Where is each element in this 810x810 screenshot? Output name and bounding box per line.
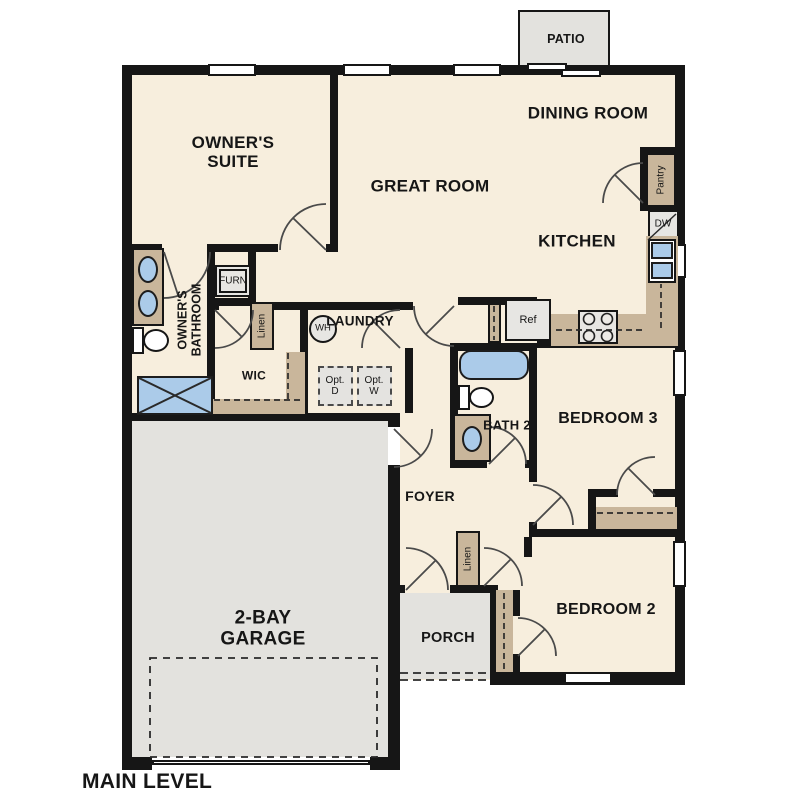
wall-suite-greatroom-divider (330, 65, 338, 248)
room-label-bath-2: BATH 2 (481, 419, 533, 434)
garage-door-line (152, 760, 370, 765)
fixture-label-dw: DW (648, 218, 678, 229)
floor-plan: OWNER'S SUITE GREAT ROOM DINING ROOM KIT… (0, 0, 810, 810)
room-label-wic: WIC (224, 369, 284, 382)
fixture-label-furn: FURN (213, 275, 253, 286)
room-label-bedroom-2: BEDROOM 2 (526, 601, 686, 619)
vanity-sink (138, 290, 158, 317)
room-label-patio: PATIO (526, 32, 606, 46)
wall-garage-right-lower (388, 465, 400, 757)
room-label-porch: PORCH (403, 630, 493, 646)
bedroom2-closet-shelf (496, 590, 513, 672)
patio-sliding-door-panel (561, 69, 601, 77)
fixture-label-linen-foyer: Linen (462, 533, 474, 585)
stove (578, 310, 618, 344)
window (343, 64, 391, 76)
window (208, 64, 256, 76)
toilet-bowl (143, 329, 169, 352)
wall-garage-bottom-right (370, 757, 400, 770)
wall-bed2-closet-right-a (513, 590, 520, 616)
wall-porch-top-a (400, 585, 405, 593)
vanity-sink (462, 426, 482, 452)
bathtub (459, 350, 529, 380)
garage-area (132, 421, 388, 757)
broom-cabinet (488, 303, 501, 343)
room-label-kitchen: KITCHEN (497, 231, 657, 250)
wall-wic-top (207, 302, 219, 310)
window (673, 541, 686, 587)
window (673, 350, 686, 396)
fixture-label-pantry: Pantry (655, 155, 667, 205)
wall-laundry-right-lower (405, 348, 413, 413)
fixture-label-ref: Ref (508, 314, 548, 326)
room-label-owners-bathroom: OWNER'S BATHROOM (176, 270, 205, 370)
wic-shelf-bottom (213, 399, 305, 414)
wall-suite-bottom-c (326, 244, 338, 252)
room-label-garage: 2-BAY GARAGE (193, 608, 333, 651)
wic-shelf-right (286, 352, 305, 399)
fixture-label-opt-w: Opt. W (361, 375, 387, 397)
toilet-bowl (469, 387, 494, 408)
wall-bed3-closet-top-a (588, 489, 618, 497)
bedroom3-closet-shelf (596, 507, 677, 529)
window (453, 64, 501, 76)
wall-bed2-hall-stub (524, 537, 532, 557)
wall-bed3-closet-top-b (653, 489, 677, 497)
shower (137, 376, 213, 415)
fixture-label-opt-d: Opt. D (322, 375, 348, 397)
room-label-great-room: GREAT ROOM (320, 176, 540, 195)
wall-garage-bottom-left (122, 757, 152, 770)
room-label-bedroom-3: BEDROOM 3 (528, 410, 688, 428)
window (564, 672, 612, 684)
wall-suite-bottom-b (210, 244, 278, 252)
wall-bed2-bed3-divider (529, 529, 685, 537)
vanity-sink (138, 256, 158, 283)
wall-bed2-closet-right-b (513, 654, 520, 680)
fixture-label-wh: WH (308, 324, 338, 335)
wall-laundry-right-upper (405, 302, 413, 310)
fixture-label-linen-hall: Linen (256, 304, 268, 348)
room-label-dining-room: DINING ROOM (478, 103, 698, 122)
plan-title: MAIN LEVEL (82, 770, 302, 794)
room-label-foyer: FOYER (385, 489, 475, 505)
wall-laundry-top (274, 302, 406, 310)
room-label-owners-suite: OWNER'S SUITE (168, 133, 298, 171)
kitchen-sink-basin (651, 262, 673, 279)
